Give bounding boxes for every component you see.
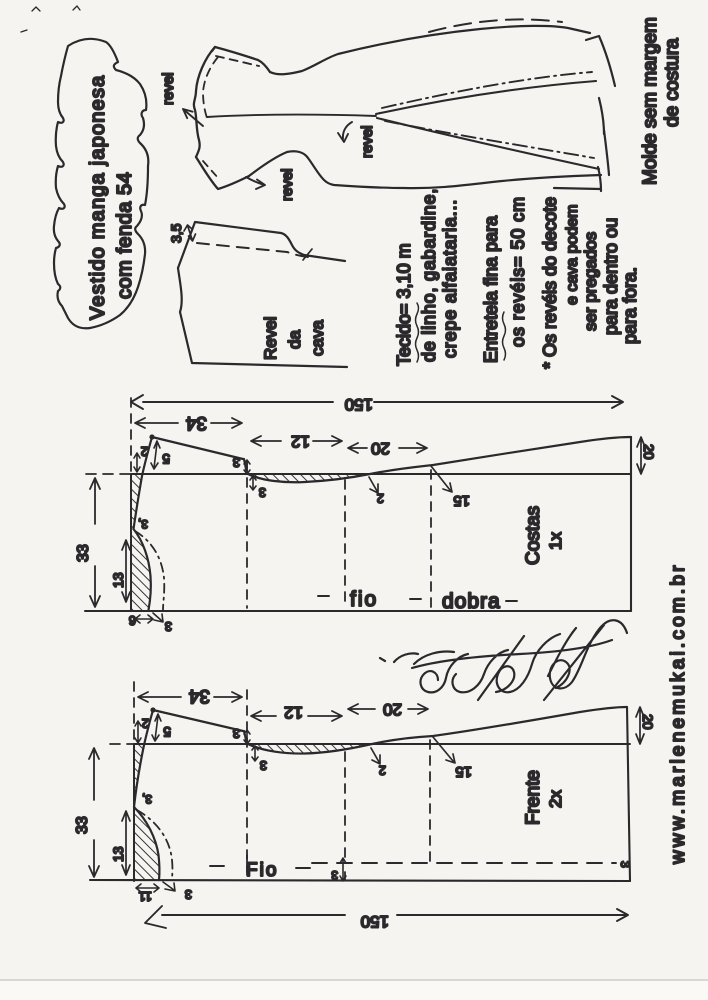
svg-text:* Os revéis do decote: * Os revéis do decote xyxy=(540,197,560,369)
svg-text:2: 2 xyxy=(379,763,386,778)
svg-text:Costas: Costas xyxy=(523,506,544,565)
svg-text:de linho, gabardine,: de linho, gabardine, xyxy=(419,188,439,362)
svg-text:34: 34 xyxy=(188,685,210,706)
svg-text:3: 3 xyxy=(233,726,240,741)
svg-text:3: 3 xyxy=(185,887,192,902)
svg-text:6: 6 xyxy=(129,613,136,628)
svg-text:www.marlenemukai.com.br: www.marlenemukai.com.br xyxy=(668,562,689,865)
svg-text:os revéis= 50 cm: os revéis= 50 cm xyxy=(508,196,528,347)
svg-text:12: 12 xyxy=(291,432,310,451)
svg-text:ser pregados: ser pregados xyxy=(581,232,600,331)
svg-text:Vestido manga japonesa: Vestido manga japonesa xyxy=(87,75,109,320)
svg-text:20: 20 xyxy=(640,714,656,730)
svg-text:3,5: 3,5 xyxy=(168,223,184,243)
svg-text:3: 3 xyxy=(260,758,267,773)
svg-text:da: da xyxy=(285,330,304,349)
svg-text:Frente: Frente xyxy=(523,770,544,825)
svg-text:20: 20 xyxy=(641,444,657,460)
svg-text:3,: 3, xyxy=(142,792,152,806)
svg-text:3: 3 xyxy=(165,619,172,634)
svg-text:13: 13 xyxy=(110,572,126,588)
svg-text:revel: revel xyxy=(359,125,376,158)
svg-text:3: 3 xyxy=(331,868,338,882)
svg-text:revel: revel xyxy=(279,168,296,201)
svg-text:dobra: dobra xyxy=(442,590,501,613)
svg-text:crepe alfaiataria...: crepe alfaiataria... xyxy=(440,199,460,358)
svg-text:20: 20 xyxy=(371,439,390,458)
svg-text:de costura: de costura xyxy=(662,38,683,127)
svg-text:34: 34 xyxy=(185,412,207,433)
svg-text:com fenda 54: com fenda 54 xyxy=(114,172,136,299)
svg-text:Entretela fina para: Entretela fina para xyxy=(481,215,501,363)
svg-text:15: 15 xyxy=(455,763,472,780)
svg-text:Tecido= 3,10 m: Tecido= 3,10 m xyxy=(394,243,414,366)
svg-text:150: 150 xyxy=(361,912,389,931)
svg-text:33: 33 xyxy=(74,816,91,834)
svg-text:2x: 2x xyxy=(546,790,565,808)
svg-text:cava: cava xyxy=(308,320,327,356)
svg-text:revel: revel xyxy=(160,72,177,105)
svg-text:33: 33 xyxy=(75,544,92,562)
svg-text:2: 2 xyxy=(377,491,384,506)
svg-text:Molde sem margem: Molde sem margem xyxy=(640,17,661,185)
svg-text:3: 3 xyxy=(233,455,240,470)
svg-text:150: 150 xyxy=(345,395,373,414)
svg-text:1x: 1x xyxy=(546,532,565,550)
svg-text:13: 13 xyxy=(110,846,126,862)
svg-text:fio: fio xyxy=(350,588,378,611)
svg-text:e cava podem: e cava podem xyxy=(564,204,581,305)
svg-text:5: 5 xyxy=(162,451,170,467)
svg-text:12: 12 xyxy=(284,703,303,722)
svg-text:3,: 3, xyxy=(138,517,148,531)
svg-text:Fio: Fio xyxy=(246,860,278,881)
svg-text:20: 20 xyxy=(383,700,402,719)
svg-text:11: 11 xyxy=(139,889,153,904)
svg-text:5: 5 xyxy=(163,724,171,740)
svg-text:3: 3 xyxy=(618,861,632,868)
svg-text:15: 15 xyxy=(453,492,470,509)
svg-text:Revel: Revel xyxy=(261,317,280,360)
svg-text:para fora.: para fora. xyxy=(620,267,640,344)
svg-text:para dentro ou: para dentro ou xyxy=(601,218,621,335)
svg-text:3: 3 xyxy=(259,485,266,500)
